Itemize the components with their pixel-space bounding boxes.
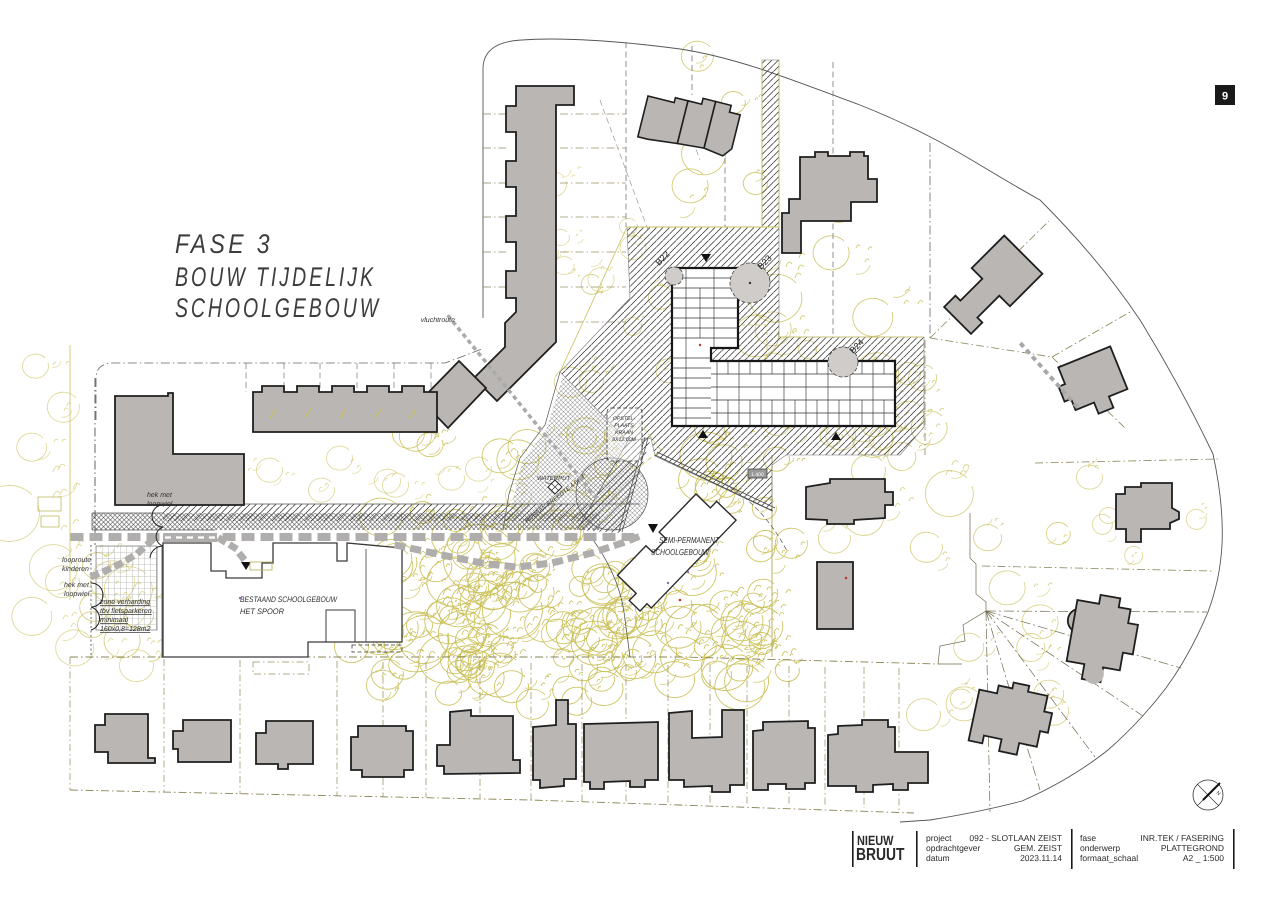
svg-text:9: 9 xyxy=(1222,91,1228,103)
svg-text:zone verharding: zone verharding xyxy=(99,598,150,606)
svg-text:kinderen: kinderen xyxy=(62,565,89,573)
svg-text:fase: fase xyxy=(1080,833,1096,843)
svg-text:A2 _ 1:500: A2 _ 1:500 xyxy=(1183,853,1224,863)
svg-text:datum: datum xyxy=(926,853,950,863)
svg-text:KRAAN: KRAAN xyxy=(615,430,633,436)
svg-text:looproute: looproute xyxy=(62,556,91,564)
svg-text:hek met: hek met xyxy=(64,581,90,589)
svg-text:formaat_schaal: formaat_schaal xyxy=(1080,853,1138,863)
svg-text:BOUW TIJDELIJK: BOUW TIJDELIJK xyxy=(175,262,376,292)
svg-text:onderwerp: onderwerp xyxy=(1080,843,1120,853)
svg-text:PLATTEGROND: PLATTEGROND xyxy=(1161,843,1224,853)
svg-text:INR.TEK / FASERING: INR.TEK / FASERING xyxy=(1140,833,1224,843)
svg-text:2023.11.14: 2023.11.14 xyxy=(1020,853,1062,863)
svg-text:SCHOOLGEBOUW: SCHOOLGEBOUW xyxy=(175,293,381,323)
svg-text:GEM. ZEIST: GEM. ZEIST xyxy=(1014,843,1062,853)
svg-text:HET SPOOR: HET SPOOR xyxy=(240,607,284,616)
svg-text:OPSTEL-: OPSTEL- xyxy=(613,416,635,422)
svg-text:vluchtroute: vluchtroute xyxy=(421,316,455,324)
svg-text:BRUUT: BRUUT xyxy=(856,844,905,864)
svg-text:8X12.00M: 8X12.00M xyxy=(612,437,636,443)
svg-text:project: project xyxy=(926,833,952,843)
svg-text:WATERPUT: WATERPUT xyxy=(537,475,571,482)
svg-text:BESTAAND SCHOOLGEBOUW: BESTAAND SCHOOLGEBOUW xyxy=(240,595,338,604)
svg-text:SEMI-PERMANENT: SEMI-PERMANENT xyxy=(659,535,720,545)
svg-text:FASE 3: FASE 3 xyxy=(175,229,273,259)
svg-text:loopwiel: loopwiel xyxy=(147,500,173,508)
svg-text:160x0,8=128m2: 160x0,8=128m2 xyxy=(100,626,151,633)
svg-text:1.400: 1.400 xyxy=(751,472,764,478)
svg-text:PLAATS: PLAATS xyxy=(614,423,634,429)
svg-text:tbv fietsparkeren: tbv fietsparkeren xyxy=(100,607,152,615)
svg-text:hek met: hek met xyxy=(147,491,173,499)
svg-text:loopwiel: loopwiel xyxy=(64,590,90,598)
svg-text:opdrachtgever: opdrachtgever xyxy=(926,843,981,853)
svg-text:minimaal: minimaal xyxy=(100,616,128,624)
svg-text:092 - SLOTLAAN ZEIST: 092 - SLOTLAAN ZEIST xyxy=(969,833,1062,843)
svg-text:SCHOOLGEBOUW: SCHOOLGEBOUW xyxy=(651,547,710,557)
